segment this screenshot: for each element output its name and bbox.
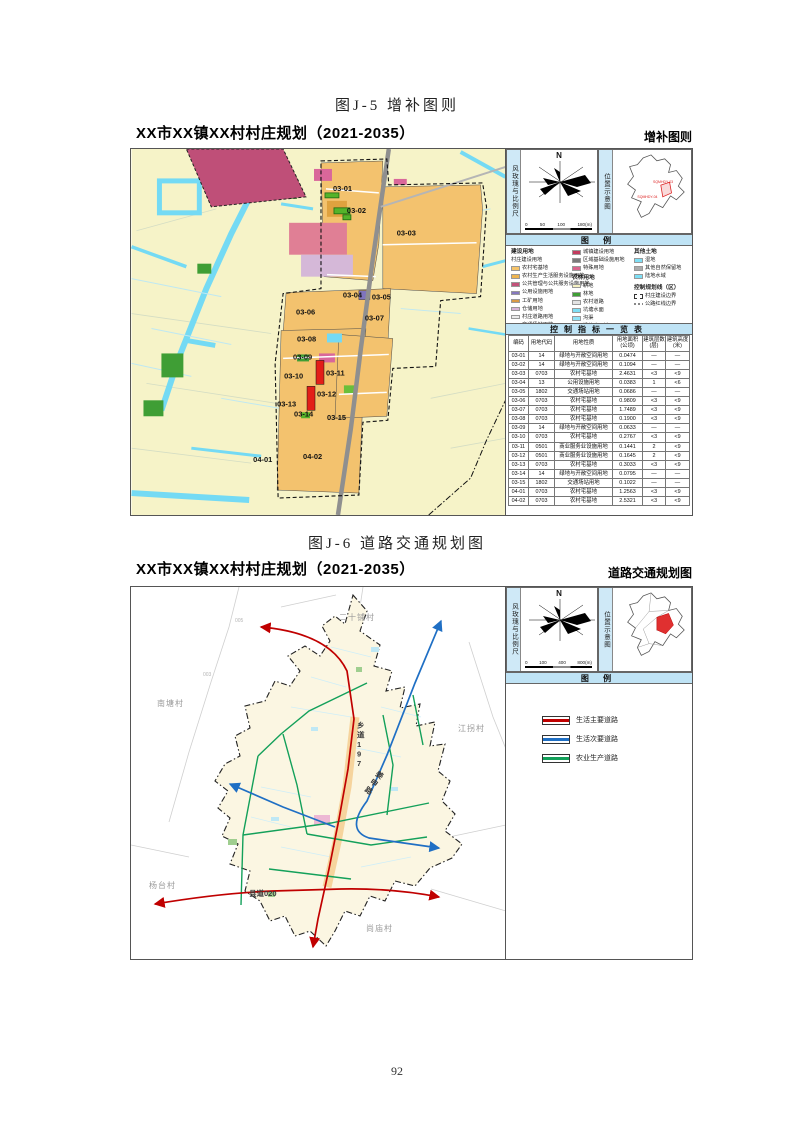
legend-label: 公路红线边界 [645,301,676,308]
table-cell: 农村宅基地 [555,460,613,469]
legend-label: 坑塘水面 [583,307,604,314]
figure2-side-panel: 风玫瑰与比例尺 N [505,587,692,959]
legend-label: 村庄道路用地 [522,314,553,321]
boundary-code-label: 005 [235,618,244,624]
figure2-plan-title: XX市XX镇XX村村庄规划（2021-2035） [136,558,415,579]
figure2-frame: 二十铺村南塘村江拐村杨台村尚庙村005003乡道197姜申路县道020 风玫瑰与… [130,586,693,960]
table-row: 03-070703农村宅基地1.7489<3<9 [509,406,690,415]
table-cell: <3 [643,497,666,506]
table-cell: <6 [666,378,690,387]
legend-swatch [511,315,520,320]
legend-item: 村庄道路用地 [511,314,571,321]
table-cell: 03-11 [509,442,529,451]
table-cell: 0703 [529,460,555,469]
legend-label: 公用设施用地 [522,289,553,296]
scale-tick: 800(m) [577,660,592,665]
road-legend-item: 农业生产道路 [542,753,618,763]
legend-label: 区域基础设施用地 [583,257,625,264]
legend-item: 特殊用地 [572,265,632,272]
location-map [614,589,692,669]
legend-swatch [572,266,581,271]
table-cell: 交通场站用地 [555,387,613,396]
legend-label: 农村道路 [583,299,604,306]
legend-item: 农村生产生活服务设施用地 [511,273,571,280]
legend-item: 农村宅基地 [511,265,571,272]
legend-item: 农村道路 [572,299,632,306]
table-row: 04-020703农村宅基地2.5321<3<9 [509,497,690,506]
table-cell: 0.0795 [613,469,643,478]
legend-group-title: 农林用地 [572,275,632,282]
table-row: 03-051802交通场站用地0.0686—— [509,387,690,396]
table-cell: <3 [643,460,666,469]
table-header-cell: 建筑层数 (层) [643,336,666,352]
table-cell: 1802 [529,387,555,396]
figure1-frame: 03-0103-0203-0303-0403-0503-0603-0703-08… [130,148,693,516]
legend-swatch [572,316,581,321]
scale-tick: 180(m) [577,222,592,227]
table-cell: 14 [529,469,555,478]
table-row: 03-0914绿地与开敞空间用地0.0633—— [509,424,690,433]
table-row: 03-100703农村宅基地0.2767<3<9 [509,433,690,442]
table-cell: 03-04 [509,378,529,387]
table-cell: 14 [529,424,555,433]
table-cell: 1.7489 [613,406,643,415]
table-cell: — [666,351,690,360]
parcel-label: 03-06 [296,308,315,317]
road-line-swatch [542,754,570,763]
table-cell: 03-08 [509,415,529,424]
table-cell: 0.3033 [613,460,643,469]
legend-swatch [634,274,643,279]
table-cell: 03-07 [509,406,529,415]
table-cell: 绿地与开敞空间用地 [555,351,613,360]
compass-rose-icon [521,597,599,643]
table-cell: <9 [666,433,690,442]
table-cell: 03-06 [509,397,529,406]
legend-swatch [511,291,520,296]
table-header-cell: 用地性质 [555,336,613,352]
table-cell: <9 [666,451,690,460]
legend-item: 仓储用地 [511,306,571,313]
legend-item: 其他自然保留地 [634,265,690,272]
table-row: 03-060703农村宅基地0.9809<3<9 [509,397,690,406]
legend-item: 公共管理与公共服务设施用地 [511,281,571,288]
table-cell: — [666,469,690,478]
table-cell: 1.2563 [613,488,643,497]
table-cell: 交通场站用地 [555,478,613,487]
legend-item: 区域基础设施用地 [572,257,632,264]
table-cell: 2 [643,442,666,451]
legend-column-other: 其他土地 湿地其他自然保留地陆地水域 控制规划线（区） 村庄建设边界公路红线边界 [634,249,690,309]
road-legend-label: 生活主要道路 [576,715,618,725]
table-row: 03-0413公用设施用地0.03831<6 [509,378,690,387]
table-cell: 农村宅基地 [555,369,613,378]
legend-swatch [511,299,520,304]
table-cell: 绿地与开敞空间用地 [555,360,613,369]
windrose-label: 风玫瑰与比例尺 [507,588,521,671]
supplementary-plan-map: 03-0103-0203-0303-0403-0503-0603-0703-08… [131,149,506,515]
table-title: 控制指标一览表 [506,323,692,335]
table-cell: 03-12 [509,451,529,460]
table-cell: 04-01 [509,488,529,497]
legend-label: 仓储用地 [522,306,543,313]
legend-item: 村庄建设边界 [634,293,690,300]
compass-rose-icon [521,159,599,205]
legend-label: 其他自然保留地 [645,265,681,272]
table-cell: 农村宅基地 [555,406,613,415]
location-label: 位置示意图 [599,588,613,671]
parcel-label: 03-03 [397,229,416,238]
road-line-swatch [542,716,570,725]
table-cell: 14 [529,360,555,369]
table-cell: 14 [529,351,555,360]
table-cell: 0.1094 [613,360,643,369]
legend-header: 图 例 [506,234,692,246]
table-cell: <9 [666,406,690,415]
road-name-label: 县道020 [249,888,277,898]
scale-tick: 50 [540,222,545,227]
table-cell: 0.0633 [613,424,643,433]
scale-bar: 0100400800(m) [525,660,592,669]
legend-label: 城镇建设用地 [583,249,614,256]
windrose-label: 风玫瑰与比例尺 [507,150,521,233]
table-cell: 0.1645 [613,451,643,460]
table-cell: 03-10 [509,433,529,442]
table-cell: — [666,360,690,369]
table-cell: 0501 [529,442,555,451]
page-number: 92 [0,1064,794,1079]
table-cell: 农村宅基地 [555,433,613,442]
legend-swatch [634,258,643,263]
scale-tick: 0 [525,660,528,665]
village-name-label: 二十铺村 [339,612,375,622]
scale-tick: 400 [558,660,566,665]
table-cell: 0703 [529,415,555,424]
parcel-label: 03-12 [317,389,336,398]
legend-swatch [572,250,581,255]
legend-subgroup-title: 村庄建设用地 [511,257,571,264]
parcel-label: 04-02 [303,452,322,461]
village-name-label: 南塘村 [157,698,184,708]
parcel-label: 03-08 [297,334,316,343]
table-cell: <3 [643,397,666,406]
legend-label: 特殊用地 [583,265,604,272]
table-cell: <9 [666,488,690,497]
table-cell: — [643,387,666,396]
table-cell: 0.1441 [613,442,643,451]
legend-item: 沟渠 [572,315,632,322]
table-cell: 03-03 [509,369,529,378]
table-cell: 农村宅基地 [555,415,613,424]
table-cell: 0703 [529,497,555,506]
legend-header: 图 例 [506,672,692,684]
table-cell: 0.9809 [613,397,643,406]
legend-item: 城镇建设用地 [572,249,632,256]
table-cell: — [643,478,666,487]
road-legend-item: 生活主要道路 [542,715,618,725]
legend-swatch [511,282,520,287]
figure1-side-panel: 风玫瑰与比例尺 N [505,149,692,515]
location-code-label: SQMHDY-03 [653,180,673,184]
parcel-label: 03-09 [293,352,312,361]
legend-label: 林地 [583,291,593,298]
table-cell: — [643,351,666,360]
table-cell: 商业服务业设施用地 [555,442,613,451]
table-header-cell: 用地代码 [529,336,555,352]
table-cell: — [666,478,690,487]
parcel-label: 03-07 [365,314,384,323]
legend-item: 坑塘水面 [572,307,632,314]
table-cell: 0703 [529,369,555,378]
table-cell: 0.0686 [613,387,643,396]
table-cell: 0.2767 [613,433,643,442]
legend-swatch [511,274,520,279]
table-cell: <9 [666,460,690,469]
table-header-cell: 编码 [509,336,529,352]
legend-item: 公路红线边界 [634,301,690,308]
location-box: 位置示意图 [598,587,692,672]
legend-item: 工矿用地 [511,298,571,305]
parcel-label: 03-13 [277,399,296,408]
windrose-box: 风玫瑰与比例尺 N [506,149,598,234]
table-cell: 0703 [529,433,555,442]
table-row: 03-0114绿地与开敞空间用地0.0474—— [509,351,690,360]
table-cell: 2.4631 [613,369,643,378]
scale-tick: 100 [539,660,547,665]
table-cell: — [666,387,690,396]
legend-swatch [572,284,581,289]
table-cell: 13 [529,378,555,387]
legend-item: 湿地 [634,257,690,264]
parcel-label: 04-01 [253,455,272,464]
parcel-label: 03-15 [327,413,346,422]
legend-label: 湿地 [645,257,655,264]
parcel-label: 03-14 [294,409,314,418]
table-cell: 2 [643,451,666,460]
table-cell: 绿地与开敞空间用地 [555,469,613,478]
village-name-label: 江拐村 [458,723,485,733]
legend-swatch [572,292,581,297]
boundary-code-label: 003 [203,672,212,678]
table-cell: 03-14 [509,469,529,478]
legend-label: 工矿用地 [522,298,543,305]
location-box: 位置示意图 SQMHDY-03SQMHDY-04 [598,149,692,234]
table-cell: 0.0383 [613,378,643,387]
legend-swatch [634,266,643,271]
parcel-label: 03-10 [284,371,303,380]
legend-label: 耕地 [583,283,593,290]
legend-label: 陆地水域 [645,273,666,280]
table-cell: <9 [666,442,690,451]
table-cell: <3 [643,415,666,424]
table-cell: 03-05 [509,387,529,396]
legend-swatch [634,294,643,299]
road-legend-item: 生活次要道路 [542,734,618,744]
legend-column-agri: 城镇建设用地区域基础设施用地特殊用地 农林用地 耕地林地农村道路坑塘水面沟渠设施… [572,249,632,331]
location-map: SQMHDY-03SQMHDY-04 [614,151,692,231]
parcel-label: 03-05 [372,293,391,302]
road-legend: 生活主要道路生活次要道路农业生产道路 [542,715,618,772]
legend-swatch [511,266,520,271]
legend-item: 耕地 [572,283,632,290]
parcel-label: 03-04 [343,291,363,300]
legend-item: 陆地水域 [634,273,690,280]
legend-item: 公用设施用地 [511,289,571,296]
location-code-label: SQMHDY-04 [637,195,657,199]
parcel-label: 03-02 [347,206,366,215]
table-cell: 0.1022 [613,478,643,487]
table-cell: — [643,360,666,369]
table-cell: <3 [643,433,666,442]
table-cell: 0703 [529,406,555,415]
table-row: 03-030703农村宅基地2.4631<3<9 [509,369,690,378]
figure1-caption: 图J-5 增补图则 [0,94,794,115]
table-cell: — [643,424,666,433]
table-cell: <3 [643,488,666,497]
legend-swatch [572,308,581,313]
table-cell: 农村宅基地 [555,497,613,506]
table-cell: <3 [643,406,666,415]
village-name-label: 尚庙村 [366,923,393,933]
table-row: 03-1414绿地与开敞空间用地0.0795—— [509,469,690,478]
legend-label: 村庄建设边界 [645,293,676,300]
table-cell: 04-02 [509,497,529,506]
table-cell: <9 [666,369,690,378]
table-row: 03-110501商业服务业设施用地0.14412<9 [509,442,690,451]
table-cell: <9 [666,497,690,506]
document-page: 图J-5 增补图则 XX市XX镇XX村村庄规划（2021-2035） 增补图则 [0,0,794,1122]
table-cell: 农村宅基地 [555,397,613,406]
table-cell: 0.1900 [613,415,643,424]
table-cell: — [643,469,666,478]
table-cell: 03-02 [509,360,529,369]
figure1-plan-title: XX市XX镇XX村村庄规划（2021-2035） [136,122,415,143]
road-line-swatch [542,735,570,744]
legend-swatch [572,300,581,305]
table-cell: 03-09 [509,424,529,433]
table-cell: <9 [666,415,690,424]
table-cell: 03-13 [509,460,529,469]
control-index-table-wrap: 编码用地代码用地性质用地面积 (公顷)建筑层数 (层)建筑高度 (米) 03-0… [508,335,690,506]
table-cell: 03-01 [509,351,529,360]
figure2-caption: 图J-6 道路交通规划图 [0,532,794,553]
table-cell: 商业服务业设施用地 [555,451,613,460]
parcel-label: 03-11 [326,368,345,377]
table-cell: 0703 [529,397,555,406]
windrose-box: 风玫瑰与比例尺 N [506,587,598,672]
table-cell: 0703 [529,488,555,497]
table-cell: 绿地与开敞空间用地 [555,424,613,433]
scale-bar: 050100180(m) [525,222,592,231]
table-cell: 公用设施用地 [555,378,613,387]
table-header-cell: 用地面积 (公顷) [613,336,643,352]
legend-label: 沟渠 [583,315,593,322]
road-traffic-plan-map: 二十铺村南塘村江拐村杨台村尚庙村005003乡道197姜申路县道020 [131,587,506,959]
parcel-label: 03-01 [333,184,352,193]
table-cell: 03-15 [509,478,529,487]
location-label: 位置示意图 [599,150,613,233]
table-row: 04-010703农村宅基地1.2563<3<9 [509,488,690,497]
table-row: 03-0214绿地与开敞空间用地0.1094—— [509,360,690,369]
figure1-panel-title: 增补图则 [500,128,692,145]
table-cell: 1 [643,378,666,387]
legend-group-title: 建设用地 [511,249,571,256]
legend-item: 林地 [572,291,632,298]
table-cell: 0501 [529,451,555,460]
table-row: 03-120501商业服务业设施用地0.16452<9 [509,451,690,460]
legend-swatch [572,258,581,263]
village-name-label: 杨台村 [149,880,176,890]
scale-tick: 100 [557,222,565,227]
table-row: 03-151802交通场站用地0.1022—— [509,478,690,487]
table-cell: <3 [643,369,666,378]
table-cell: 2.5321 [613,497,643,506]
legend-swatch [634,303,643,305]
table-header-cell: 建筑高度 (米) [666,336,690,352]
table-cell: <9 [666,397,690,406]
figure2-panel-title: 道路交通规划图 [500,564,692,581]
table-row: 03-130703农村宅基地0.3033<3<9 [509,460,690,469]
table-row: 03-080703农村宅基地0.1900<3<9 [509,415,690,424]
legend-label: 农村宅基地 [522,265,548,272]
legend-group-title: 其他土地 [634,249,690,256]
control-index-table: 编码用地代码用地性质用地面积 (公顷)建筑层数 (层)建筑高度 (米) 03-0… [508,335,690,506]
table-cell: 0.0474 [613,351,643,360]
table-cell: — [666,424,690,433]
legend-swatch [511,307,520,312]
table-cell: 农村宅基地 [555,488,613,497]
road-legend-label: 生活次要道路 [576,734,618,744]
scale-tick: 0 [525,222,528,227]
table-cell: 1802 [529,478,555,487]
road-legend-label: 农业生产道路 [576,753,618,763]
legend-group-title: 控制规划线（区） [634,285,690,292]
